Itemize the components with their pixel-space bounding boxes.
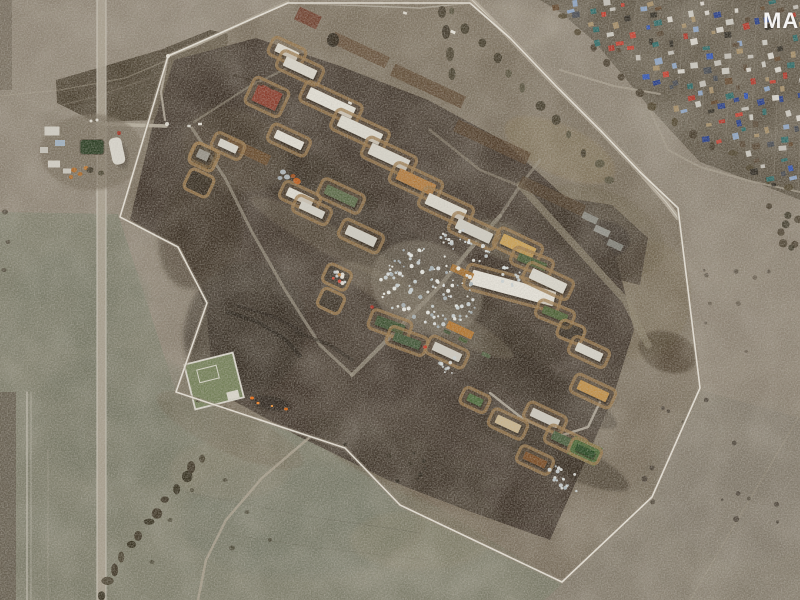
watermark-text: MA — [763, 8, 799, 34]
satellite-image — [0, 0, 800, 600]
photo-grain — [0, 0, 800, 600]
satellite-view: MA — [0, 0, 800, 600]
